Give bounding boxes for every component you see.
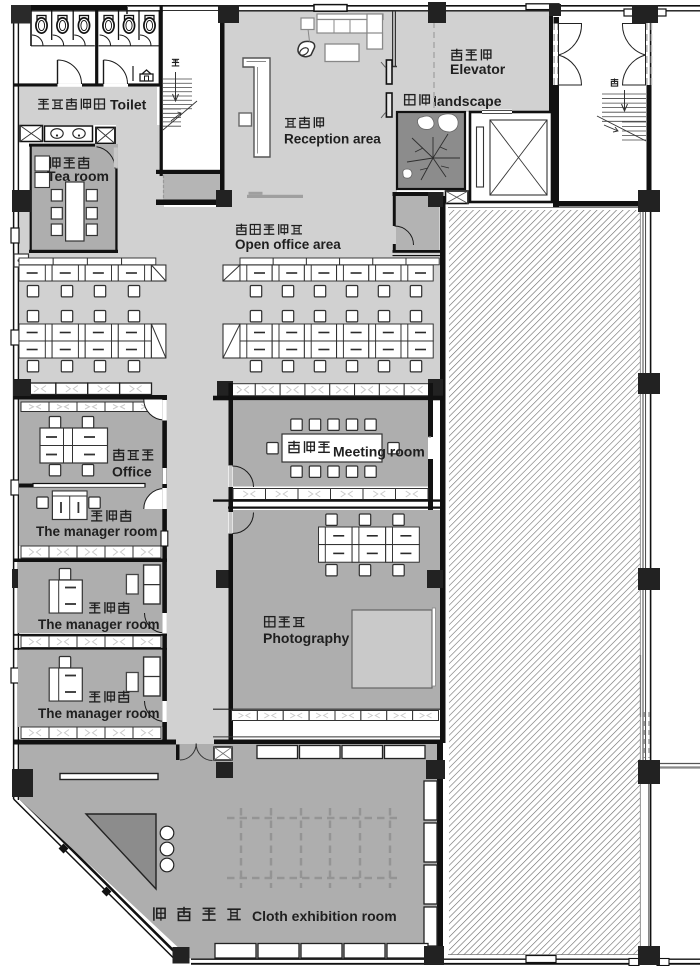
svg-text:The manager room: The manager room [38, 706, 160, 721]
svg-text:Meeting room: Meeting room [333, 444, 425, 460]
svg-text:Reception area: Reception area [284, 132, 381, 147]
svg-text:Open office area: Open office area [235, 237, 341, 252]
svg-text:The manager room: The manager room [38, 617, 160, 632]
svg-text:Tea room: Tea room [47, 168, 109, 184]
svg-text:The manager room: The manager room [36, 524, 158, 539]
svg-text:Office: Office [112, 464, 152, 480]
svg-text:Toilet: Toilet [110, 97, 147, 113]
svg-text:Cloth exhibition room: Cloth exhibition room [252, 908, 397, 924]
svg-text:landscape: landscape [433, 93, 502, 109]
svg-text:Photography: Photography [263, 630, 350, 646]
svg-text:Elevator: Elevator [450, 61, 506, 77]
